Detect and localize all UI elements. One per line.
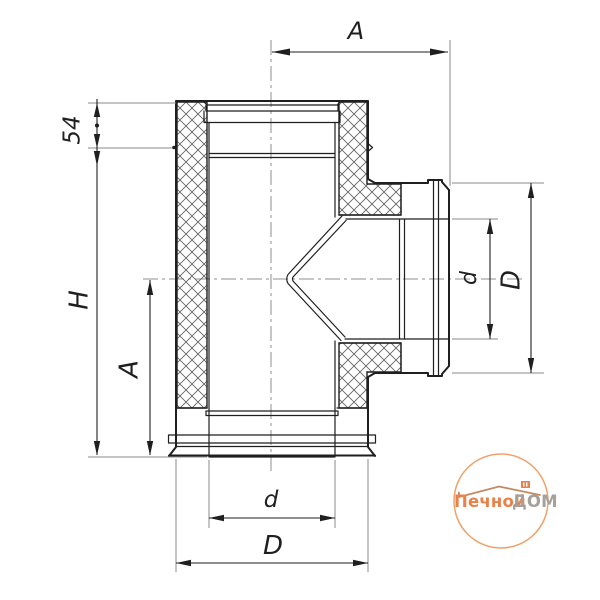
cone-transition [287,216,346,341]
logo-chimney-icon [521,481,530,488]
sandwich-tee-drawing: A 54 H A d D d D Печной ДОМ [0,0,600,600]
arrowheads [94,49,534,567]
brand-logo: Печной ДОМ [454,454,558,548]
dim-label-branch-outer: D [497,270,527,290]
dim-label-bottom-outer: D [263,531,283,561]
dim-label-branch-inner: d [457,270,482,285]
dim-label-bottom-inner: d [264,487,279,513]
dimension-lines [97,52,531,563]
logo-brand-secondary: ДОМ [512,492,558,511]
logo-chimney-slit2 [526,483,527,487]
left-wall-insulation [177,102,207,408]
dim-label-total-height: H [65,290,95,310]
dimension-arrows [94,49,534,567]
right-upper-insulation [339,102,401,215]
technical-drawing-page: A 54 H A d D d D Печной ДОМ [0,0,600,600]
logo-chimney-slit [523,483,524,487]
dim-label-axis-to-bottom: A [115,360,145,380]
weld-dot [172,146,176,150]
dim-label-top-width: A [346,17,364,45]
dim-label-collar-height: 54 [60,115,86,144]
dimension-midpoint-dot [95,123,99,127]
